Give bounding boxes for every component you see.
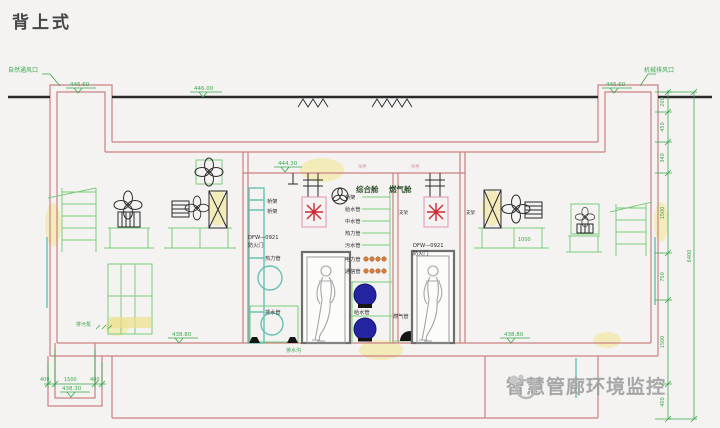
fan-icon [502, 195, 530, 223]
hanger-embed-label: 吊件 [358, 163, 367, 170]
rack-row-label: 桥架 [267, 207, 277, 215]
watermark: 智慧管廊环境监控 [506, 372, 666, 399]
elevation-ground: 446.00 [194, 86, 214, 92]
ladder-right [610, 202, 652, 256]
drain-label: 排水沟 [286, 347, 301, 354]
rack-row-label: 热力管 [265, 254, 281, 262]
cabin-label-gas: 燃气舱 [389, 184, 412, 194]
elevation-shaft-left: 446.60 [70, 82, 90, 88]
silencer-icon [172, 201, 189, 217]
pipe-rack-label: 电力管 [345, 255, 361, 263]
water-pipe-label: 给水管 [354, 308, 370, 316]
vent-left-label: 自然通风口 [8, 66, 38, 74]
dim-total: 6400 [687, 250, 693, 263]
pump-label: 排污泵 [76, 321, 91, 328]
grille-icon [577, 224, 593, 233]
pipe-rack-shelves [362, 197, 390, 245]
ground-line [8, 97, 712, 107]
bracket-label: 支架 [466, 209, 475, 216]
fire-damper-glyph [427, 203, 445, 221]
fire-doors [302, 251, 454, 343]
dim-pit-value: 400 [40, 377, 50, 383]
rack-row-label: 排水管 [265, 308, 281, 316]
gas-pipe-label: 燃气管 [393, 312, 409, 320]
pipe-rack-label: 中水管 [345, 217, 361, 225]
grille-icon [118, 212, 140, 227]
silencer-icon [525, 202, 542, 218]
dim-value: 1500 [660, 207, 666, 220]
fire-door-model: DFW—0921 [413, 243, 444, 249]
tank [108, 264, 152, 334]
dim-value: 340 [660, 153, 666, 163]
dim-value: 450 [660, 122, 666, 132]
stand-right-2 [566, 236, 602, 252]
pipe-rack-label: 桥架 [345, 193, 355, 201]
pipe-loop-upper [258, 266, 282, 290]
fire-door-name: 防火门 [248, 241, 264, 249]
watermark-logo-icon [506, 372, 540, 402]
dim-pit-value: 1500 [64, 377, 77, 383]
leader-left [42, 74, 60, 86]
cable-bundle [364, 257, 387, 274]
elevation-floor-right: 438.80 [504, 332, 524, 338]
hanger-embed-label: 吊件 [411, 163, 420, 170]
sump-pit [48, 343, 102, 406]
dim-value: 200 [660, 97, 666, 107]
stand-1 [104, 228, 154, 248]
fire-door-model: DFW—0921 [248, 235, 279, 241]
elevation-floor-left: 438.80 [172, 332, 192, 338]
elevation-pit: 438.30 [62, 386, 82, 392]
water-pipe-section [354, 284, 376, 306]
rack-row-label: 桥架 [267, 197, 277, 205]
stand-2 [164, 228, 236, 248]
fan-icon [195, 158, 223, 186]
elevation-shaft-right: 446.60 [606, 82, 626, 88]
fire-door-name: 防火门 [413, 249, 429, 257]
ground-hatch [298, 99, 412, 107]
elevation-roof-center: 444.30 [278, 161, 298, 167]
fire-door-right [412, 251, 454, 343]
pipe-rack-label: 给水管 [345, 205, 361, 213]
fire-damper-glyph [305, 203, 323, 221]
pipe-rack-label: 通信管 [345, 267, 361, 275]
tunnel-section-drawing: 自然通风口 机械排风口 446.60 446.00 446.60 444.30 … [0, 0, 720, 428]
leader-right [640, 74, 656, 86]
water-pipe-section [354, 318, 376, 340]
stand-right-1 [474, 228, 549, 248]
pipe-rack-label: 污水管 [345, 241, 361, 249]
dim-value: 1500 [660, 336, 666, 349]
dim-value: 750 [660, 272, 666, 282]
bracket-label: 支架 [399, 209, 408, 216]
cabin-label-utility: 综合舱 [356, 184, 379, 194]
cad-drawing: 背上式 [0, 0, 720, 428]
pipe-rack-label: 热力管 [345, 229, 361, 237]
dim-platform: 1000 [518, 237, 531, 243]
vent-right-label: 机械排风口 [644, 66, 674, 74]
dim-pit-value: 400 [90, 377, 100, 383]
